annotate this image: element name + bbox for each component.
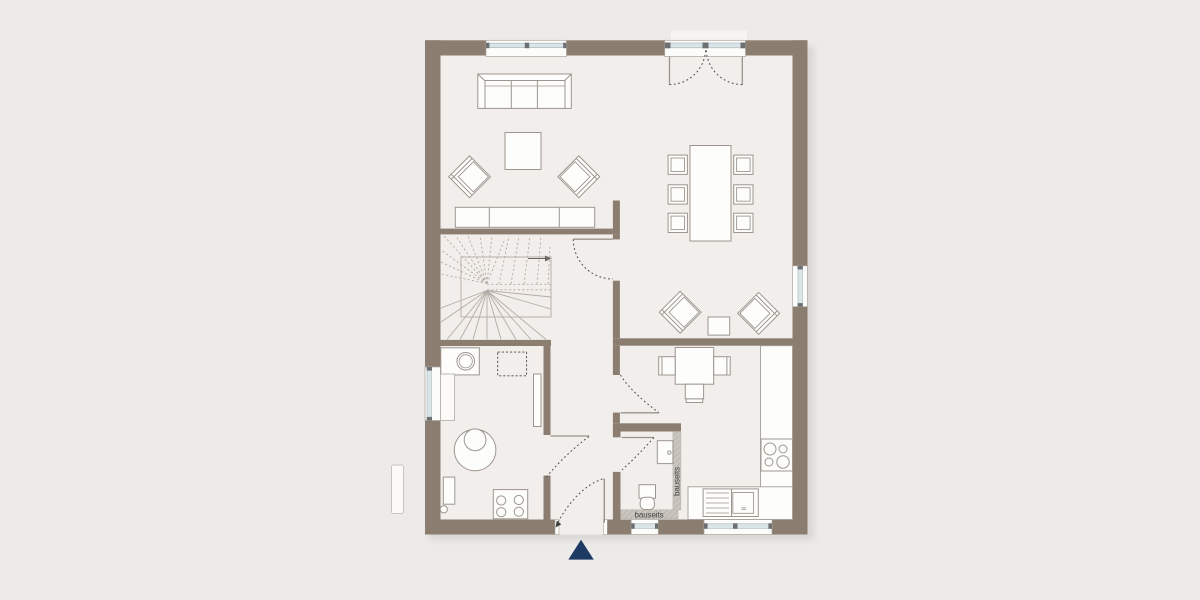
svg-text:bauseits: bauseits [672,467,681,496]
svg-text:bauseits: bauseits [635,510,664,519]
